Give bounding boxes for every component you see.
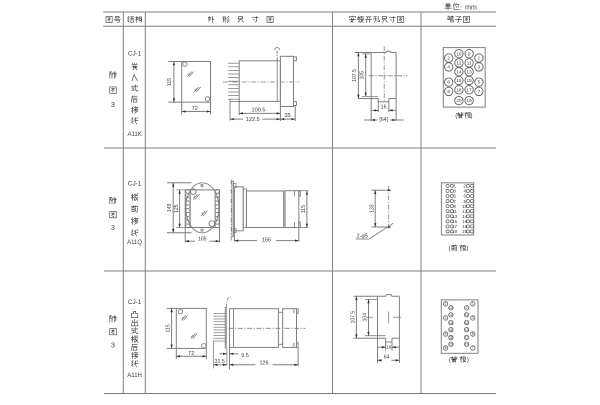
svg-text:72: 72	[192, 106, 198, 112]
svg-text:mm: mm	[465, 4, 477, 11]
svg-text:115: 115	[301, 205, 307, 213]
svg-text:17: 17	[465, 336, 469, 340]
svg-text:14: 14	[449, 321, 453, 325]
svg-text:1: 1	[472, 302, 474, 306]
svg-text:122.5: 122.5	[246, 117, 260, 123]
svg-text:CJ-1: CJ-1	[128, 180, 142, 187]
svg-text:9: 9	[468, 51, 471, 56]
svg-text:A11K: A11K	[127, 132, 141, 138]
svg-text:133: 133	[369, 204, 375, 213]
svg-text:107.5: 107.5	[350, 311, 356, 324]
svg-text:15: 15	[465, 328, 469, 332]
svg-text:35: 35	[284, 113, 290, 119]
svg-text:[64]: [64]	[379, 117, 388, 123]
svg-text:8: 8	[445, 346, 447, 350]
svg-text:19: 19	[452, 229, 457, 234]
svg-text:19: 19	[467, 98, 473, 103]
svg-text:3: 3	[111, 342, 115, 349]
svg-text:6: 6	[445, 332, 447, 336]
svg-text:105: 105	[198, 236, 207, 242]
svg-text:7: 7	[478, 89, 481, 94]
svg-text:19: 19	[465, 342, 469, 346]
svg-text:18: 18	[456, 87, 462, 92]
svg-text:149: 149	[167, 203, 173, 212]
svg-text:18: 18	[449, 336, 453, 340]
svg-text:115: 115	[167, 78, 173, 86]
svg-text:6: 6	[447, 80, 450, 85]
svg-text:8: 8	[447, 89, 450, 94]
svg-text:125: 125	[174, 204, 180, 213]
svg-text:9: 9	[466, 306, 468, 310]
svg-text:64: 64	[384, 355, 390, 361]
svg-text:5: 5	[472, 332, 474, 336]
svg-text:12: 12	[449, 313, 453, 317]
svg-text:107.5: 107.5	[352, 69, 358, 82]
svg-text:16: 16	[386, 345, 392, 351]
svg-text:3: 3	[111, 102, 115, 109]
svg-text:17: 17	[467, 87, 473, 92]
svg-text:16: 16	[381, 105, 387, 111]
svg-text:2-φ5: 2-φ5	[357, 234, 368, 240]
svg-text:11: 11	[465, 313, 469, 317]
svg-text:14: 14	[456, 69, 462, 74]
svg-text:3: 3	[478, 65, 481, 70]
svg-text:100.5: 100.5	[252, 108, 266, 114]
svg-text:72: 72	[188, 351, 194, 357]
svg-text:A11Q: A11Q	[127, 240, 142, 246]
svg-text:11: 11	[467, 61, 472, 66]
svg-text:7: 7	[472, 346, 474, 350]
svg-text:5: 5	[478, 80, 481, 85]
svg-text:4: 4	[445, 316, 447, 320]
svg-text:3: 3	[472, 316, 474, 320]
svg-text:16: 16	[449, 328, 453, 332]
svg-text:9.5: 9.5	[241, 353, 249, 359]
svg-text:12: 12	[456, 61, 462, 66]
svg-text:10: 10	[449, 306, 453, 310]
svg-text:13: 13	[465, 321, 469, 325]
svg-text::: :	[460, 4, 462, 11]
svg-text:CJ-1: CJ-1	[128, 299, 142, 306]
svg-text:): )	[470, 113, 472, 120]
svg-text:CJ-1: CJ-1	[128, 51, 142, 58]
svg-text:3: 3	[111, 225, 115, 232]
svg-text:A11H: A11H	[127, 373, 142, 379]
svg-text:13: 13	[467, 69, 473, 74]
svg-text:105: 105	[360, 71, 366, 80]
svg-text:20: 20	[462, 229, 467, 234]
svg-text:104: 104	[363, 313, 369, 322]
svg-text:4: 4	[447, 65, 450, 70]
svg-text:10: 10	[456, 51, 462, 56]
svg-text:126: 126	[260, 360, 269, 366]
svg-text:2: 2	[447, 56, 450, 61]
svg-text:): )	[467, 357, 469, 364]
svg-text:16: 16	[456, 78, 462, 83]
svg-text:1: 1	[478, 56, 481, 61]
svg-text:20: 20	[456, 98, 462, 103]
svg-text:): )	[466, 245, 468, 252]
svg-text:2: 2	[445, 302, 447, 306]
svg-text:115: 115	[165, 324, 171, 332]
svg-text:20: 20	[449, 342, 453, 346]
svg-text:31.5: 31.5	[215, 359, 225, 365]
svg-text:15: 15	[467, 78, 473, 83]
svg-text:156: 156	[262, 238, 271, 244]
